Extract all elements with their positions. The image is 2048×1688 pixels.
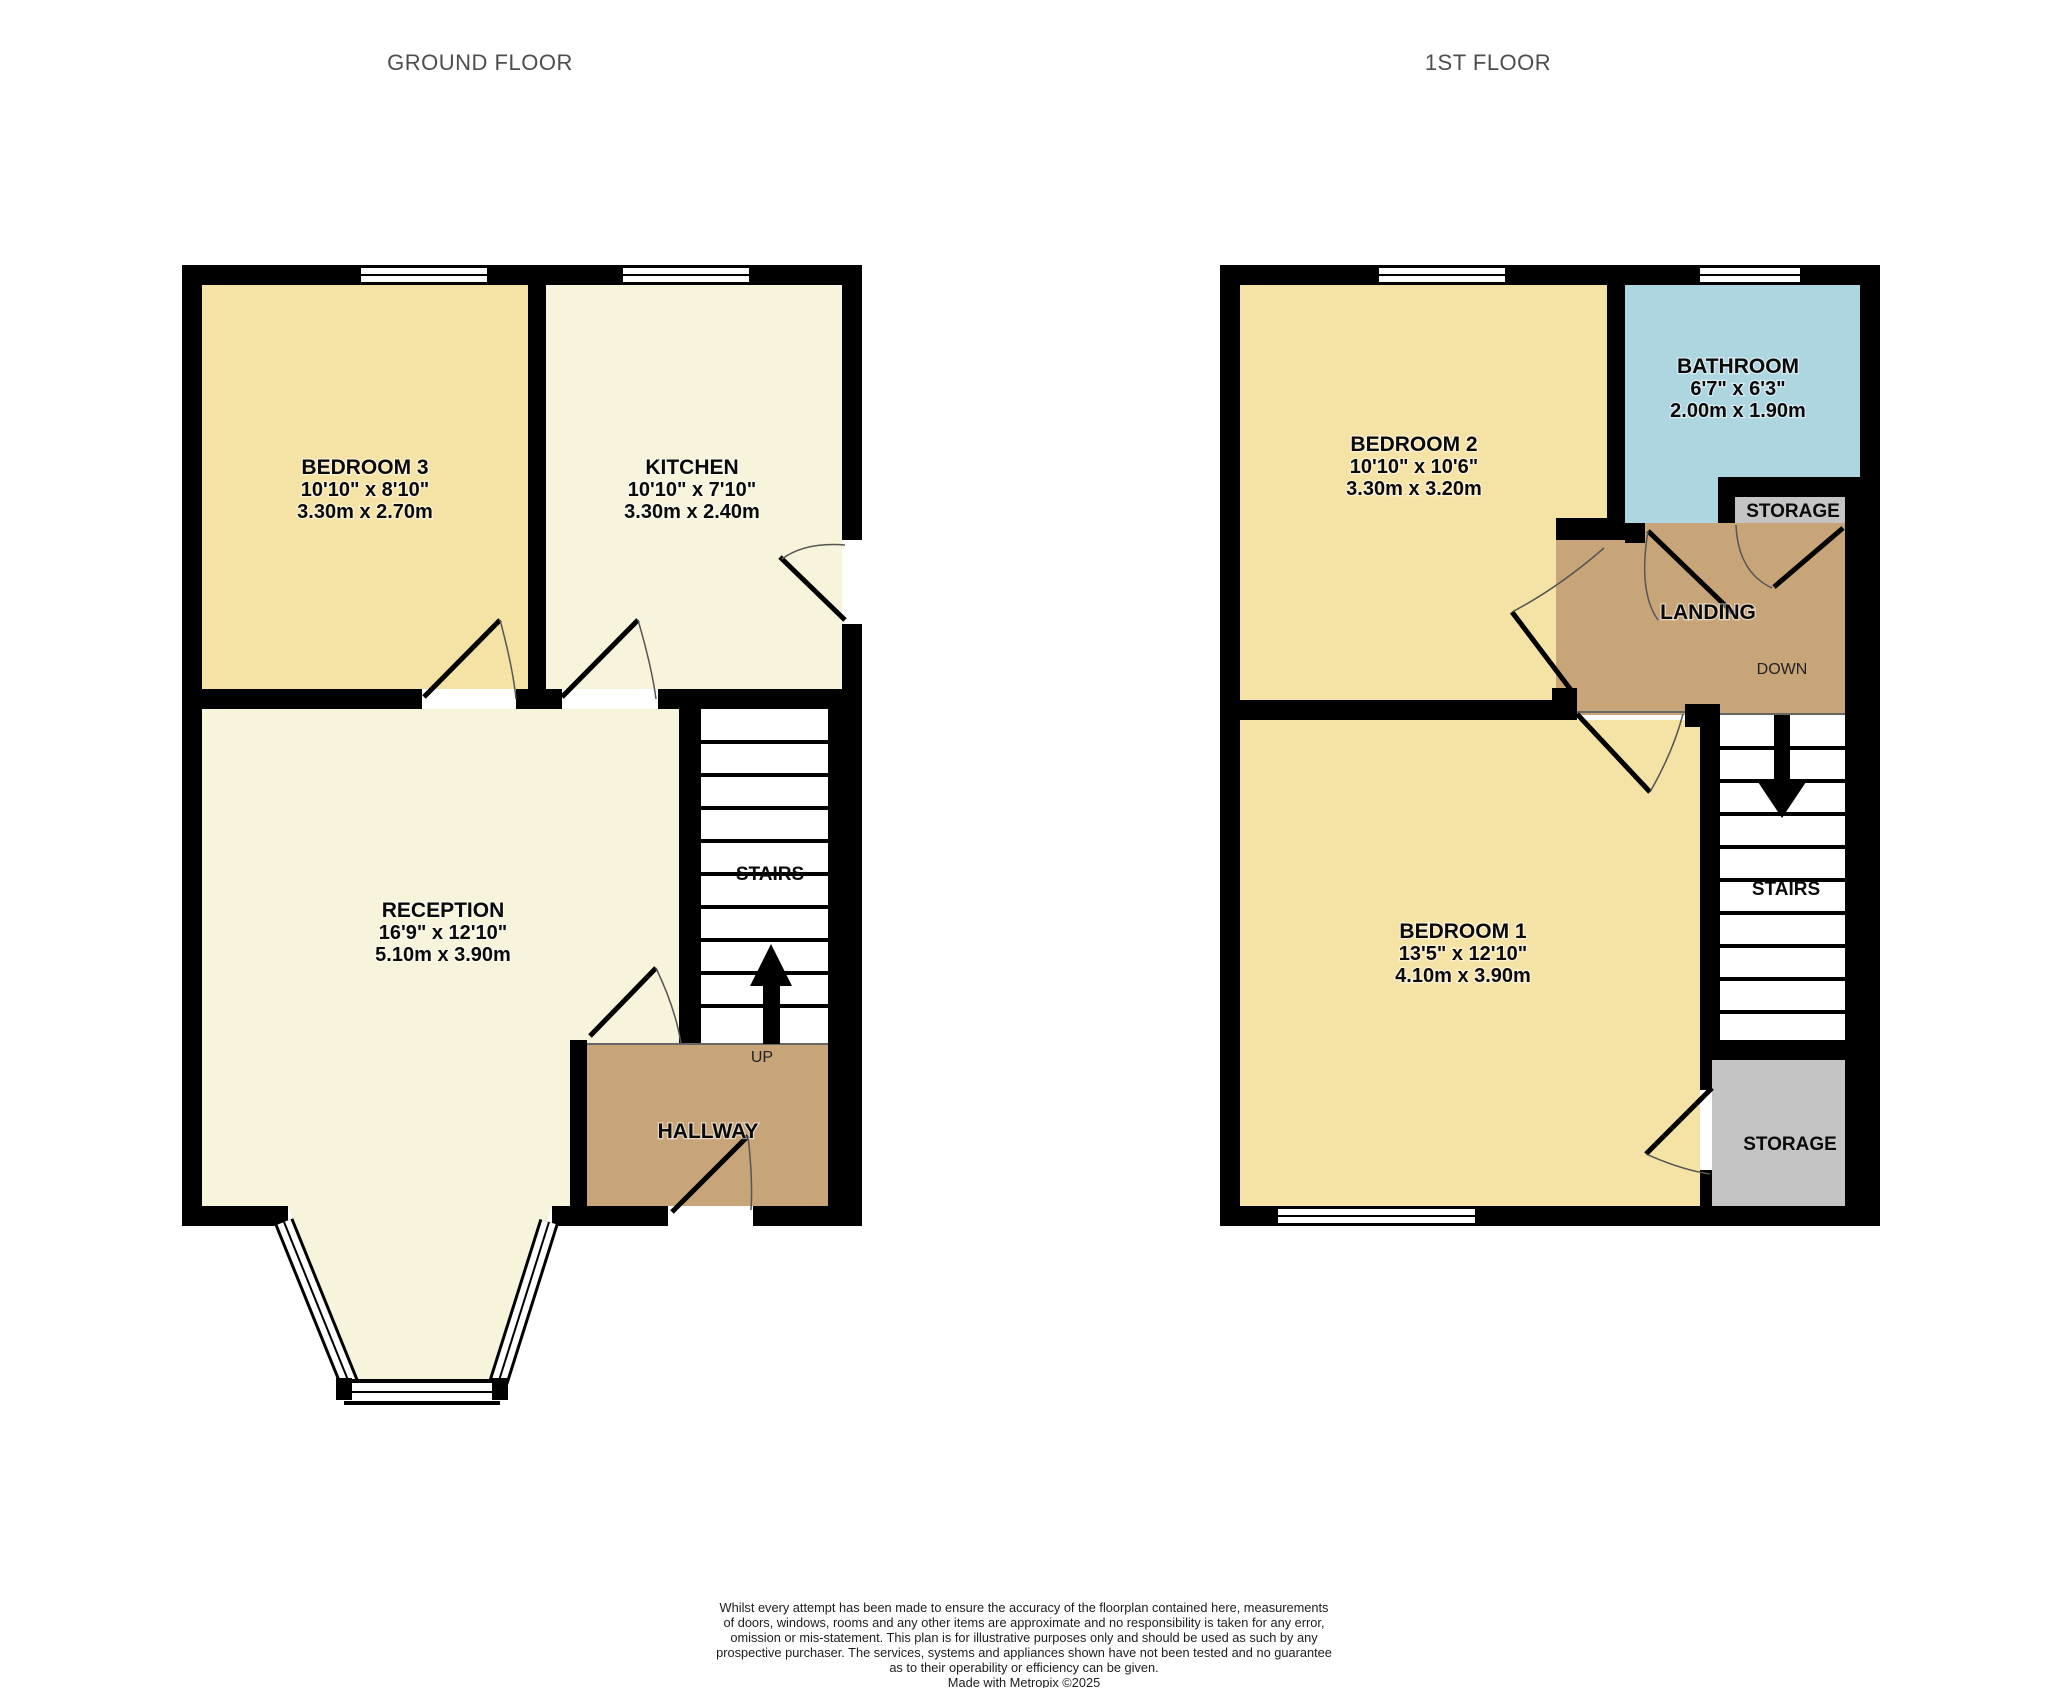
hallway-label: HALLWAY [658, 1120, 759, 1143]
disclaimer-line-3: omission or mis-statement. This plan is … [730, 1630, 1318, 1645]
bedroom2-bedroom1-wall [1220, 700, 1552, 720]
bedroom3-dims-metric: 3.30m x 2.70m [297, 501, 433, 523]
up-label: UP [751, 1049, 773, 1066]
bedroom1-window [1278, 1206, 1475, 1226]
bedroom2-label: BEDROOM 2 [1350, 433, 1477, 456]
hallway-wall [570, 1040, 587, 1206]
storage-top-label: STORAGE [1746, 501, 1840, 522]
reception-dims-imperial: 16'9" x 12'10" [379, 922, 508, 944]
storage-bottom-room [1712, 1060, 1845, 1206]
bedroom1-label: BEDROOM 1 [1399, 920, 1527, 943]
disclaimer-line-2: of doors, windows, rooms and any other i… [723, 1615, 1324, 1630]
bedroom2-window [1379, 265, 1505, 285]
kitchen-window [623, 265, 749, 285]
bathroom-label: BATHROOM [1677, 355, 1799, 378]
gf-stair-wall [679, 709, 701, 1044]
disclaimer-line-6: Made with Metropix ©2025 [948, 1675, 1100, 1688]
floorplan-canvas: GROUND FLOOR 1ST FLOOR [0, 0, 2048, 1688]
first-floor-plan: BEDROOM 2 10'10" x 10'6" 3.30m x 3.20m B… [1220, 265, 1880, 1226]
bedroom2-bathroom-wall [1607, 265, 1625, 540]
kitchen-label: KITCHEN [645, 456, 738, 479]
reception-dims-metric: 5.10m x 3.90m [375, 944, 511, 966]
bedroom3-dims-imperial: 10'10" x 8'10" [301, 479, 430, 501]
bedroom2-dims-imperial: 10'10" x 10'6" [1350, 456, 1479, 478]
reception-label: RECEPTION [382, 899, 505, 922]
bedroom2-dims-metric: 3.30m x 3.20m [1346, 478, 1482, 500]
bathroom-dims-imperial: 6'7" x 6'3" [1690, 378, 1785, 400]
bedroom3-window [361, 265, 487, 285]
gf-stairs-label: STAIRS [736, 864, 804, 885]
bedroom1-dims-metric: 4.10m x 3.90m [1395, 965, 1531, 987]
ground-floor-title: GROUND FLOOR [387, 50, 573, 75]
kitchen-dims-imperial: 10'10" x 7'10" [628, 479, 757, 501]
bedroom3-label: BEDROOM 3 [301, 456, 428, 479]
down-label: DOWN [1757, 661, 1808, 678]
bedroom3-kitchen-wall [528, 265, 546, 689]
storage-bottom-label: STORAGE [1743, 1134, 1837, 1155]
bedroom1-dims-imperial: 13'5" x 12'10" [1399, 943, 1528, 965]
ff-stairs-label: STAIRS [1752, 879, 1820, 900]
landing-label: LANDING [1660, 601, 1756, 624]
disclaimer-line-5: as to their operability or efficiency ca… [889, 1660, 1158, 1675]
disclaimer-line-4: prospective purchaser. The services, sys… [716, 1645, 1332, 1660]
ground-floor-plan: BEDROOM 3 10'10" x 8'10" 3.30m x 2.70m K… [182, 265, 862, 1400]
kitchen-dims-metric: 3.30m x 2.40m [624, 501, 760, 523]
storage-top-wall [1718, 477, 1845, 497]
ff-stair-wall [1700, 712, 1720, 1060]
first-floor-title: 1ST FLOOR [1425, 50, 1551, 75]
disclaimer-line-1: Whilst every attempt has been made to en… [720, 1600, 1329, 1615]
disclaimer-text: Whilst every attempt has been made to en… [716, 1600, 1332, 1688]
bathroom-window [1700, 265, 1800, 285]
bathroom-dims-metric: 2.00m x 1.90m [1670, 400, 1806, 422]
